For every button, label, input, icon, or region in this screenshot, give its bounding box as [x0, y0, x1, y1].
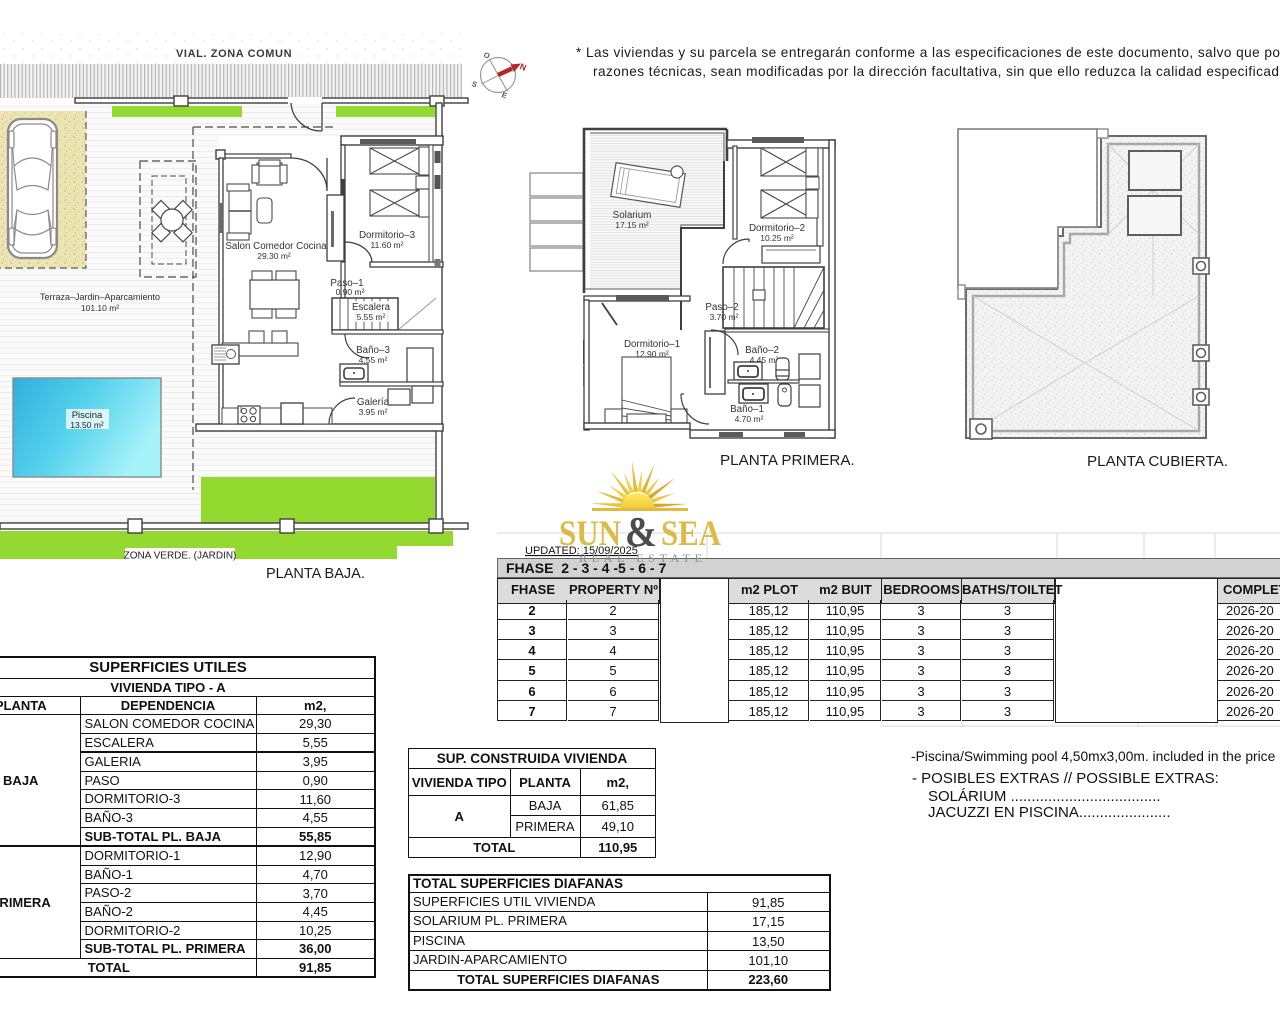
svg-text:PLANTA CUBIERTA.: PLANTA CUBIERTA. [1087, 453, 1228, 470]
svg-text:razones técnicas, sean modific: razones técnicas, sean modificadas por l… [593, 64, 1280, 79]
svg-text:5.55 m²: 5.55 m² [357, 312, 386, 322]
svg-text:S: S [470, 79, 478, 89]
svg-text:Terraza–Jardin–Aparcamiento: Terraza–Jardin–Aparcamiento [40, 292, 160, 302]
svg-text:13.50 m²: 13.50 m² [70, 420, 104, 430]
svg-text:PLANTA PRIMERA.: PLANTA PRIMERA. [720, 452, 855, 469]
svg-text:29.30 m²: 29.30 m² [257, 251, 291, 261]
svg-text:17.15 m²: 17.15 m² [615, 220, 649, 230]
svg-text:UPDATED: 15/09/2025: UPDATED: 15/09/2025 [525, 545, 638, 557]
svg-text:PLANTA BAJA.: PLANTA BAJA. [266, 566, 365, 582]
svg-text:11.60 m²: 11.60 m² [371, 240, 404, 250]
svg-text:10.25 m²: 10.25 m² [760, 233, 794, 243]
svg-text:101.10 m²: 101.10 m² [81, 303, 119, 313]
svg-text:4.70 m²: 4.70 m² [735, 414, 764, 424]
svg-text:N: N [518, 61, 527, 73]
svg-text:* Las viviendas y su parcela s: * Las viviendas y su parcela se entregar… [576, 45, 1280, 60]
svg-text:3.95 m²: 3.95 m² [359, 407, 388, 417]
svg-text:3.70 m²: 3.70 m² [710, 312, 739, 322]
svg-text:VIAL. ZONA COMUN: VIAL. ZONA COMUN [176, 48, 292, 60]
svg-text:ZONA VERDE. (JARDIN): ZONA VERDE. (JARDIN) [124, 551, 237, 562]
svg-text:0.90 m²: 0.90 m² [336, 287, 365, 297]
